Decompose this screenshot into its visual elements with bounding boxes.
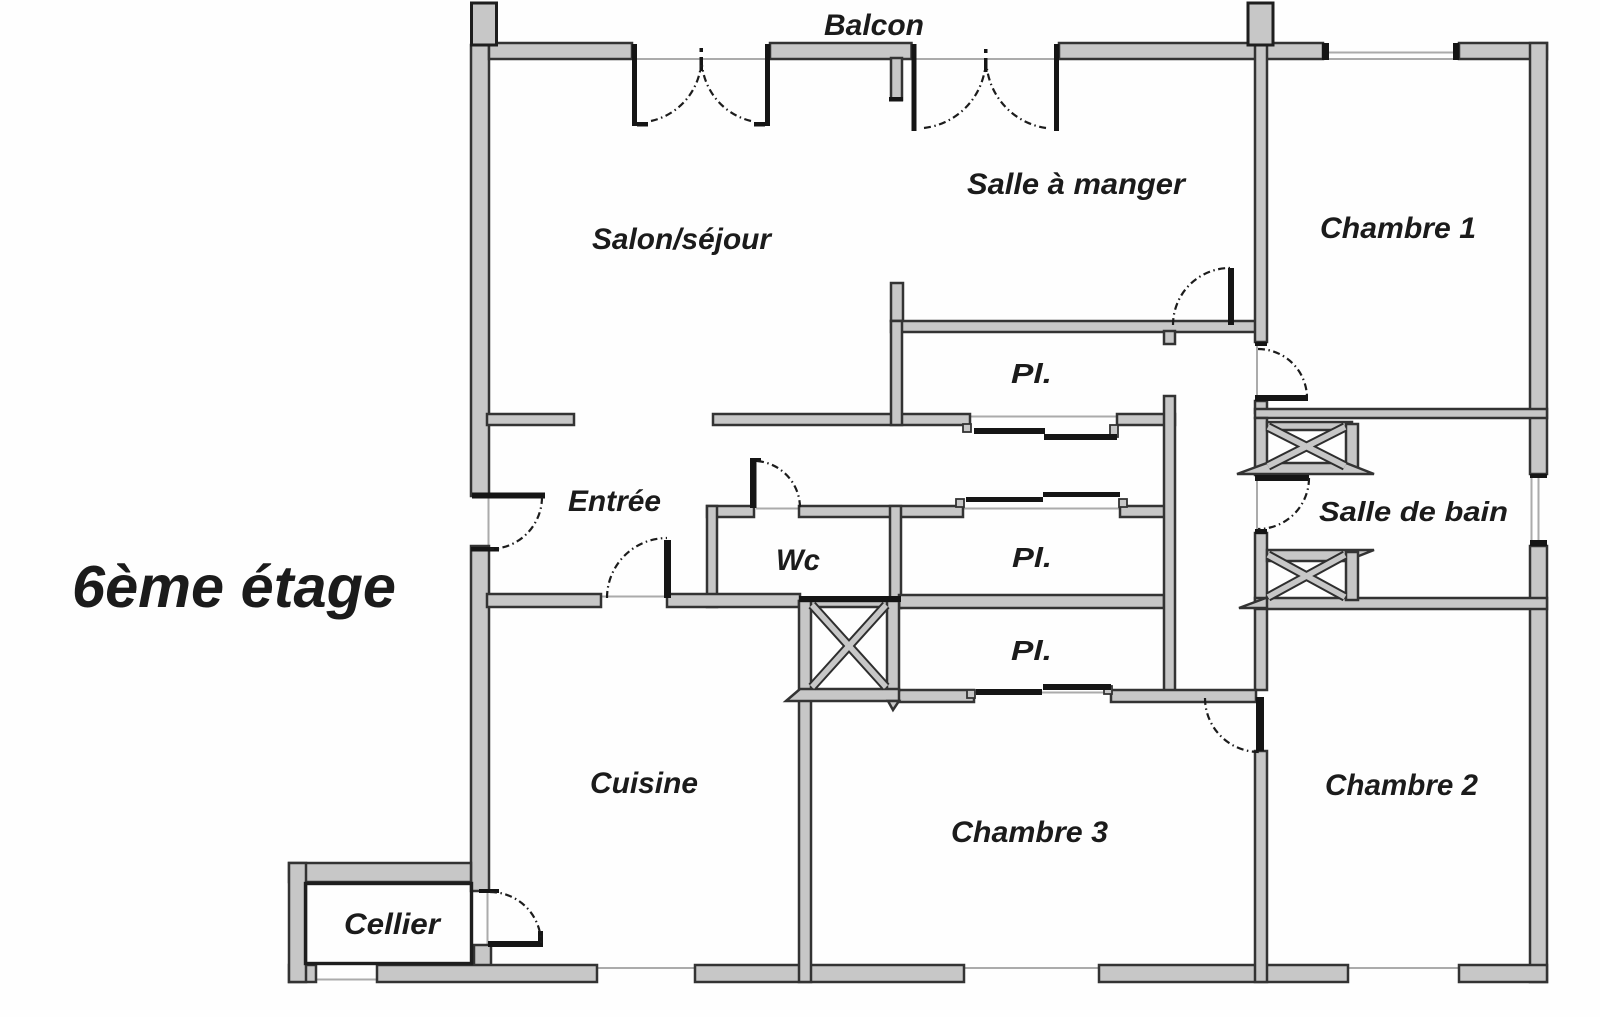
svg-text:Cuisine: Cuisine [590, 767, 698, 800]
svg-text:Cellier: Cellier [344, 908, 442, 941]
svg-text:Balcon: Balcon [824, 9, 924, 42]
svg-text:Salon/séjour: Salon/séjour [592, 223, 773, 256]
svg-text:6ème étage: 6ème étage [72, 554, 396, 620]
svg-text:Pl.: Pl. [1011, 358, 1052, 389]
svg-text:Chambre 1: Chambre 1 [1320, 212, 1476, 245]
svg-text:Salle à manger: Salle à manger [967, 168, 1187, 201]
svg-text:Entrée: Entrée [568, 485, 661, 518]
svg-text:Wc: Wc [776, 544, 820, 577]
svg-text:Pl.: Pl. [1012, 542, 1052, 573]
svg-text:Chambre 3: Chambre 3 [951, 816, 1108, 849]
svg-text:Chambre 2: Chambre 2 [1325, 769, 1478, 802]
svg-text:Salle de bain: Salle de bain [1319, 496, 1508, 527]
svg-text:Pl.: Pl. [1011, 635, 1052, 666]
